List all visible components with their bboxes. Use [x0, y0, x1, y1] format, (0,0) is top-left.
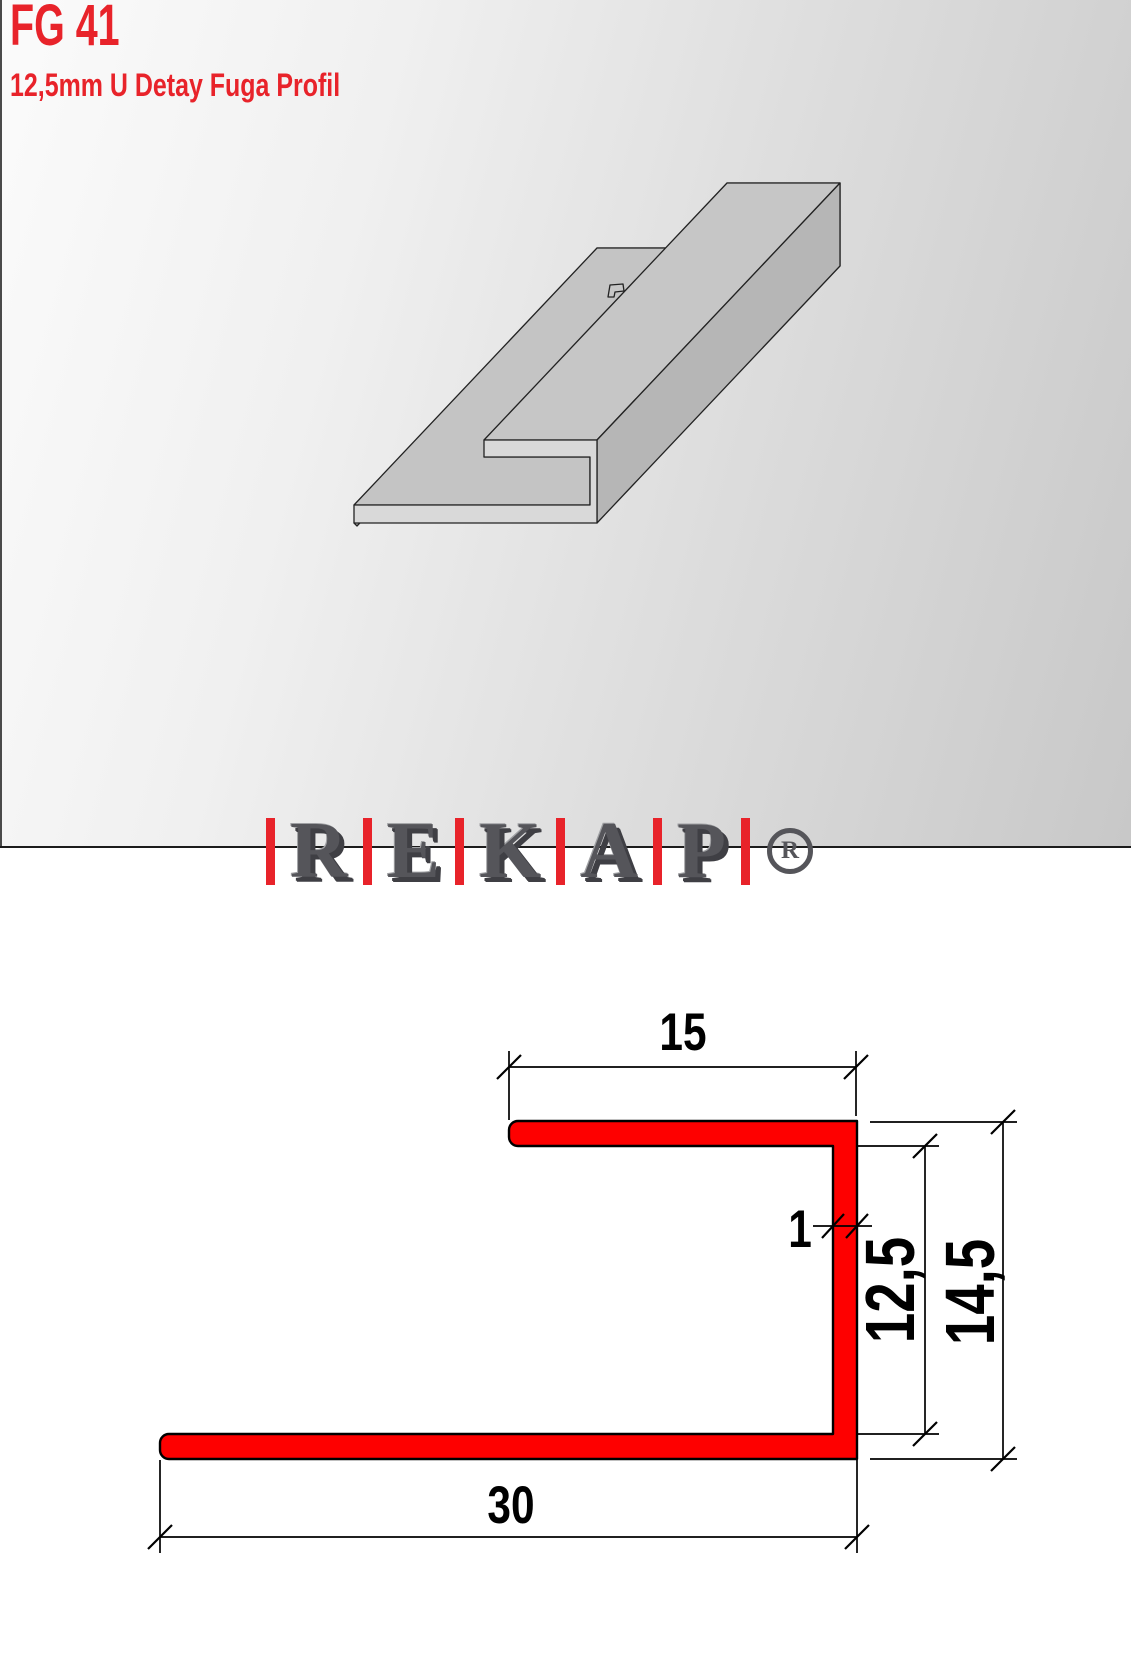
logo-separator-bar	[741, 818, 750, 885]
logo-letter-a: A	[580, 819, 638, 883]
logo-letter-k: K	[479, 819, 541, 883]
logo-letter-r: R	[290, 819, 348, 883]
dim-label-outer-height: 14,5	[932, 1239, 1010, 1345]
logo-separator-bar	[556, 818, 565, 885]
logo-separator-bar	[653, 818, 662, 885]
logo-separator-bar	[363, 818, 372, 885]
dim-label-top-flange: 15	[659, 1004, 706, 1063]
logo-separator-bar	[266, 818, 275, 885]
logo-letter-e: E	[387, 819, 440, 883]
dim-label-bottom-flange: 30	[487, 1477, 534, 1536]
dim-label-wall-thickness: 1	[788, 1201, 812, 1260]
profile-3d-bar	[354, 183, 840, 526]
profile-3d-render	[2, 0, 1131, 847]
profile-cross-section	[160, 1121, 857, 1459]
technical-drawing: 15 1 12,5 14,5	[0, 847, 1131, 1661]
dimension-inner-height: 12,5	[852, 1134, 939, 1446]
logo-letter-p: P	[677, 819, 726, 883]
dimension-bottom-flange: 30	[148, 1460, 869, 1553]
brand-logo: R E K A P R	[266, 812, 813, 890]
drawing-section: 15 1 12,5 14,5	[0, 847, 1131, 1661]
dimension-top-flange: 15	[497, 1004, 868, 1120]
dim-label-inner-height: 12,5	[852, 1237, 930, 1343]
top-section: FG 41 12,5mm U Detay Fuga Profil	[0, 0, 1131, 847]
registered-trademark-icon: R	[767, 828, 813, 874]
logo-separator-bar	[455, 818, 464, 885]
product-sheet: FG 41 12,5mm U Detay Fuga Profil	[0, 0, 1131, 1661]
